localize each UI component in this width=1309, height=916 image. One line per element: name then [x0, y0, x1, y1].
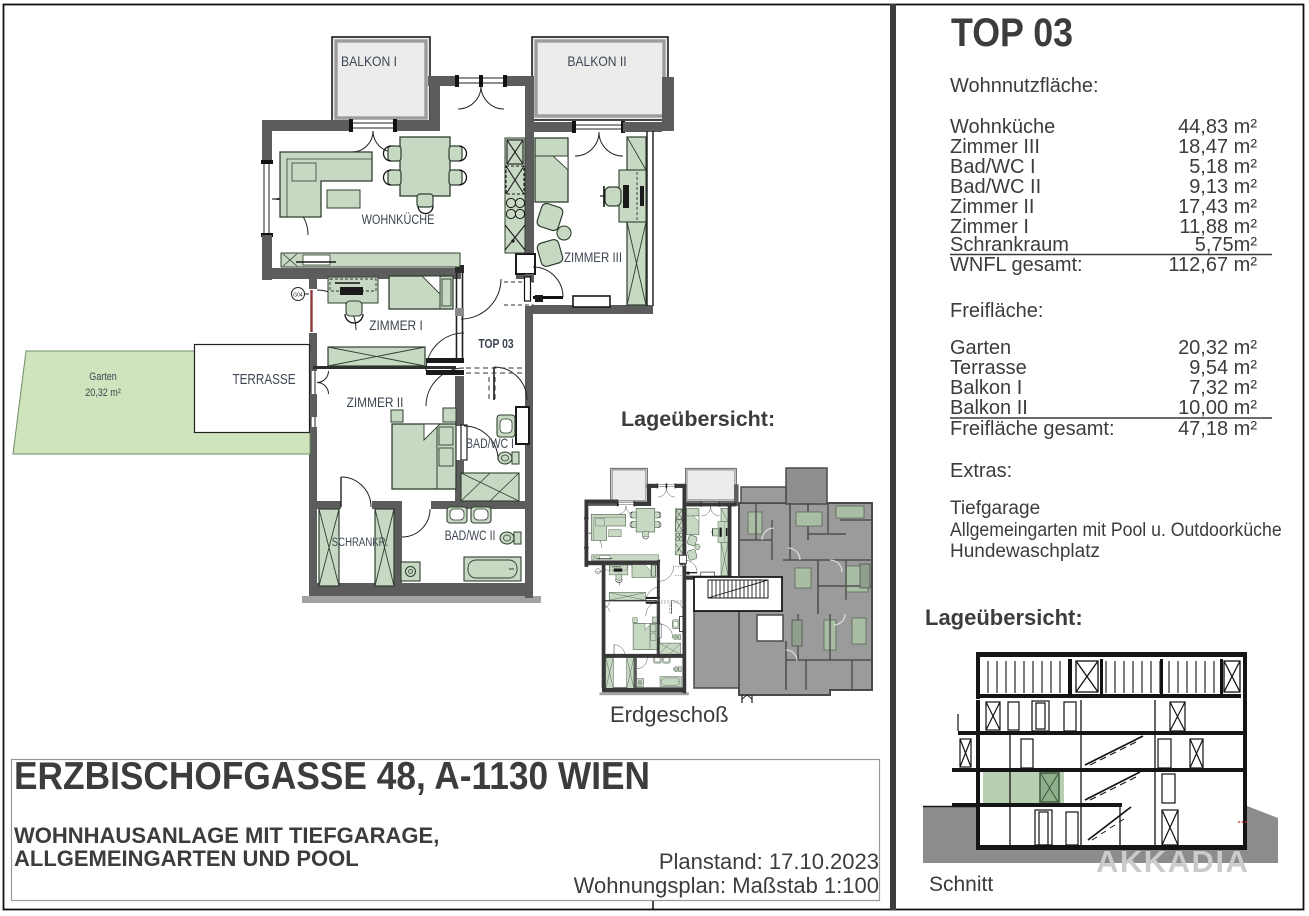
- svg-text:ZIMMER III: ZIMMER III: [564, 249, 622, 265]
- svg-text:Bad/WC I: Bad/WC I: [950, 156, 1036, 178]
- svg-text:44,83 m²: 44,83 m²: [1178, 116, 1257, 138]
- svg-text:Bad/WC II: Bad/WC II: [950, 176, 1041, 198]
- svg-text:7,32 m²: 7,32 m²: [1189, 377, 1257, 399]
- svg-text:10,00 m²: 10,00 m²: [1178, 397, 1257, 419]
- svg-text:Allgemeingarten mit Pool u. Ou: Allgemeingarten mit Pool u. Outdoorküche: [950, 518, 1282, 540]
- svg-text:Zimmer III: Zimmer III: [950, 136, 1040, 158]
- svg-text:BAD/WC I: BAD/WC I: [466, 436, 514, 452]
- svg-text:Wohnküche: Wohnküche: [950, 116, 1055, 138]
- svg-text:Extras:: Extras:: [950, 460, 1012, 482]
- svg-text:TERRASSE: TERRASSE: [232, 371, 295, 388]
- svg-text:BAD/WC II: BAD/WC II: [445, 528, 496, 544]
- svg-text:Schnitt: Schnitt: [929, 873, 993, 896]
- svg-text:Lageübersicht:: Lageübersicht:: [621, 407, 775, 431]
- svg-text:Tiefgarage: Tiefgarage: [950, 498, 1040, 519]
- svg-text:SCHRANKR.: SCHRANKR.: [332, 536, 389, 549]
- svg-text:ZIMMER I: ZIMMER I: [369, 317, 423, 333]
- svg-text:20,32 m²: 20,32 m²: [85, 387, 121, 399]
- svg-text:TOP 03: TOP 03: [951, 11, 1073, 55]
- svg-text:Hundewaschplatz: Hundewaschplatz: [950, 541, 1100, 562]
- svg-text:Schrankraum: Schrankraum: [950, 234, 1069, 256]
- svg-text:17,43 m²: 17,43 m²: [1178, 196, 1257, 218]
- svg-text:18,47 m²: 18,47 m²: [1178, 136, 1257, 158]
- svg-text:Freifläche:: Freifläche:: [950, 300, 1043, 322]
- svg-text:ERZBISCHOFGASSE 48, A-1130 WIE: ERZBISCHOFGASSE 48, A-1130 WIEN: [14, 753, 650, 797]
- svg-text:Garten: Garten: [950, 337, 1011, 359]
- svg-text:BALKON I: BALKON I: [341, 53, 397, 69]
- svg-text:BALKON II: BALKON II: [567, 53, 626, 69]
- svg-text:Lageübersicht:: Lageübersicht:: [925, 605, 1083, 630]
- svg-text:Garten: Garten: [89, 371, 117, 383]
- svg-text:20,32 m²: 20,32 m²: [1178, 337, 1257, 359]
- svg-text:ZIMMER II: ZIMMER II: [347, 394, 404, 410]
- svg-text:112,67 m²: 112,67 m²: [1168, 254, 1257, 276]
- svg-text:9,54 m²: 9,54 m²: [1189, 357, 1257, 379]
- svg-text:WNFL gesamt:: WNFL gesamt:: [950, 254, 1083, 276]
- svg-text:TOP 03: TOP 03: [478, 338, 513, 351]
- svg-text:Wohnnutzfläche:: Wohnnutzfläche:: [950, 75, 1099, 97]
- svg-text:47,18 m²: 47,18 m²: [1178, 418, 1257, 440]
- svg-text:WOHNKÜCHE: WOHNKÜCHE: [362, 212, 435, 228]
- svg-text:5,75m²: 5,75m²: [1195, 234, 1258, 256]
- svg-text:WOHNHAUSANLAGE MIT TIEFGARAGE,: WOHNHAUSANLAGE MIT TIEFGARAGE,: [14, 823, 439, 848]
- svg-text:Zimmer II: Zimmer II: [950, 196, 1034, 218]
- svg-text:ALLGEMEINGARTEN UND POOL: ALLGEMEINGARTEN UND POOL: [14, 846, 359, 871]
- svg-text:Balkon II: Balkon II: [950, 397, 1028, 419]
- svg-text:9,13 m²: 9,13 m²: [1189, 176, 1257, 198]
- svg-text:5,18 m²: 5,18 m²: [1189, 156, 1257, 178]
- svg-text:Freifläche gesamt:: Freifläche gesamt:: [950, 418, 1115, 440]
- svg-text:Balkon I: Balkon I: [950, 377, 1022, 399]
- svg-text:Planstand: 17.10.2023: Planstand: 17.10.2023: [659, 849, 879, 874]
- svg-text:Terrasse: Terrasse: [950, 357, 1027, 379]
- svg-text:Wohnungsplan: Maßstab 1:100: Wohnungsplan: Maßstab 1:100: [574, 873, 879, 898]
- svg-text:Erdgeschoß: Erdgeschoß: [610, 702, 729, 727]
